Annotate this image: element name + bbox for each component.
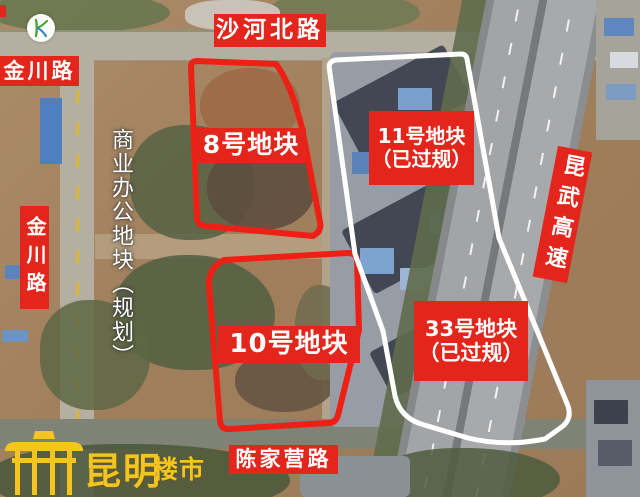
parcel-label-text: 11号地块 xyxy=(378,125,466,148)
clipped-label-fragment xyxy=(0,5,6,17)
parcel-8-label: 8号地块 xyxy=(196,128,306,163)
satellite-parcel-map: 沙河北路 金川路 金川路 昆武高速 陈家营路 8号地块 10号地块 11号地块 … xyxy=(0,0,640,497)
parcel-label-text: 33号地块 xyxy=(425,317,517,341)
k-logo-icon xyxy=(30,17,52,39)
road-label-shahe-north: 沙河北路 xyxy=(214,14,326,47)
road-label-text: 金川路 xyxy=(23,216,46,300)
parcel-10-label: 10号地块 xyxy=(218,326,360,363)
gate-icon xyxy=(5,431,83,497)
parcel-11-label: 11号地块 （已过规） xyxy=(369,111,474,185)
road-label-jinchuan-top: 金川路 xyxy=(0,56,79,86)
parcel-status-text: （已过规） xyxy=(419,341,524,365)
parcel-label-text: 8号地块 xyxy=(203,131,299,160)
parcel-status-text: （已过规） xyxy=(372,148,472,171)
parcel-33-label: 33号地块 （已过规） xyxy=(414,301,528,381)
road-label-jinchuan-left: 金川路 xyxy=(20,206,49,309)
kunming-k-logo xyxy=(27,14,55,42)
parcel-label-text: 10号地块 xyxy=(229,330,348,360)
road-label-text: 陈家营路 xyxy=(236,447,332,471)
watermark-main-text: 昆明 xyxy=(84,441,162,495)
gate-icon-svg xyxy=(5,431,83,495)
road-label-text: 金川路 xyxy=(4,59,76,83)
road-label-chenjiaying: 陈家营路 xyxy=(229,445,338,474)
watermark-sub-text: 楼市 xyxy=(153,450,205,486)
road-label-text: 沙河北路 xyxy=(216,17,324,43)
planning-parcel-annotation: 商业办公地块（规划） xyxy=(106,128,136,368)
